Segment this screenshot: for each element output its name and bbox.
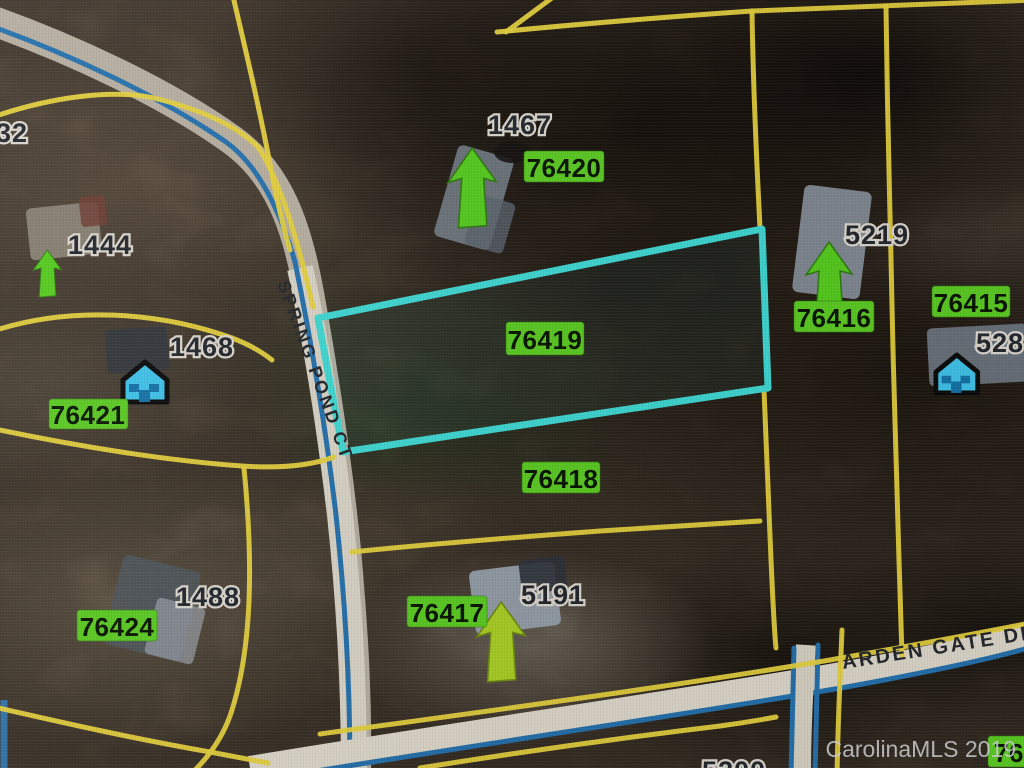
house-icon-window [942, 376, 952, 384]
house-number-32-partial: 32 [0, 118, 28, 148]
parcel-label-text: 76421 [51, 400, 126, 430]
parcel-label-text: 76416 [797, 303, 872, 333]
house-icon-window [149, 384, 159, 392]
parcel-label-76418: 76418 [522, 462, 600, 494]
house-number-1468: 1468 [170, 332, 234, 362]
house-icon-window [129, 384, 139, 392]
parcel-label-76416: 76416 [794, 301, 874, 333]
house-icon-door [139, 390, 150, 402]
parcel-label-76419: 76419 [506, 322, 584, 355]
house-number-1467: 1467 [488, 110, 552, 140]
house-number-1488: 1488 [176, 582, 240, 612]
parcel-label-text: 76424 [80, 612, 155, 642]
parcel-label-76424: 76424 [77, 610, 157, 642]
parcel-label-text: 76418 [524, 464, 599, 494]
parcel-label-text: 76415 [934, 288, 1009, 318]
parcel-label-text: 76419 [508, 325, 583, 355]
parcel-label-76417: 76417 [407, 596, 487, 628]
building-1444-roof [79, 195, 108, 228]
house-number-528-partial: 528 [976, 328, 1024, 358]
parcel-label-76420: 76420 [524, 151, 604, 183]
parcel-label-text: 76417 [410, 598, 485, 628]
watermark: CarolinaMLS 2019 [825, 736, 1016, 762]
parcel-label-text: 76420 [527, 153, 602, 183]
house-number-5219: 5219 [845, 220, 909, 250]
house-icon-door [951, 382, 961, 393]
house-number-5200-partial: 5200 [702, 756, 766, 768]
house-icon-window [961, 376, 971, 384]
map-viewport[interactable]: 76420 76419 76418 76417 76416 76415 [0, 0, 1024, 768]
house-number-1444: 1444 [68, 230, 132, 260]
map-overlay: 76420 76419 76418 76417 76416 76415 [0, 0, 1024, 768]
house-number-5191: 5191 [521, 580, 585, 610]
parcel-label-76415: 76415 [932, 286, 1010, 318]
parcel-label-76421: 76421 [49, 399, 128, 430]
